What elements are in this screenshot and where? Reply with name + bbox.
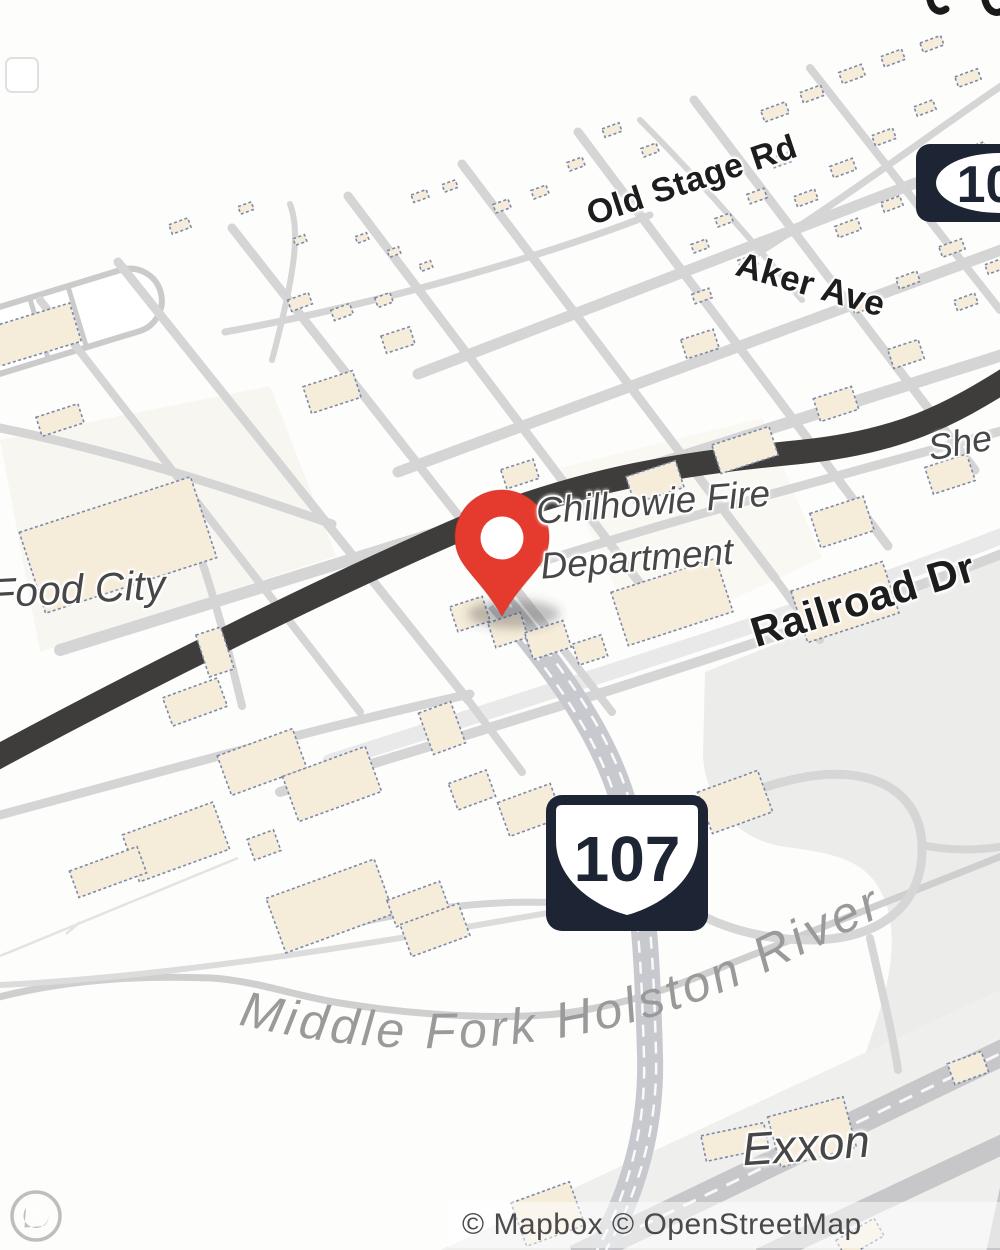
building [602,123,622,138]
building [411,190,429,203]
building [355,233,369,244]
mapbox-logo[interactable] [8,1188,64,1244]
building [738,254,758,270]
building [813,386,858,421]
route-shield-107: 107 [546,795,708,931]
building [266,859,394,953]
building [881,49,905,67]
building [163,678,228,726]
building [954,293,978,311]
building [169,218,191,234]
building [955,69,981,88]
building [531,185,549,199]
building [375,293,393,308]
svg-text:107: 107 [574,823,681,895]
building [794,189,818,207]
star-icon [30,1208,45,1223]
building [641,143,659,157]
building [567,157,585,171]
building [747,188,767,204]
map-canvas[interactable]: Middle Fork Holston River 107 107 Chilho… [0,0,1000,1250]
building [247,830,281,860]
pin-hole [481,517,524,560]
building [810,496,874,548]
map-attribution[interactable]: © Mapbox © OpenStreetMap [448,1202,1000,1248]
building [381,327,415,353]
building [872,128,896,146]
building [835,218,862,237]
building [839,64,866,83]
svg-text:107: 107 [957,156,1000,214]
building [888,340,925,369]
building [303,371,361,414]
building [691,239,709,253]
route-shield-107-corner: 107 [916,144,1000,222]
basemap-tiles: Middle Fork Holston River 107 107 [0,0,1000,1250]
building [761,102,790,122]
building [501,459,540,489]
building [715,213,733,227]
dropped-pin-marker[interactable] [455,490,549,616]
building [800,85,824,103]
clipped-label-fragments [930,0,1000,12]
building [572,635,607,665]
building [419,261,433,272]
building [238,202,254,214]
building [830,158,857,177]
building [69,847,146,898]
building [448,770,495,810]
building [771,152,791,168]
building [914,100,936,116]
building [925,454,975,494]
building [920,36,944,53]
building [442,180,458,192]
pin-shadow [468,600,560,628]
